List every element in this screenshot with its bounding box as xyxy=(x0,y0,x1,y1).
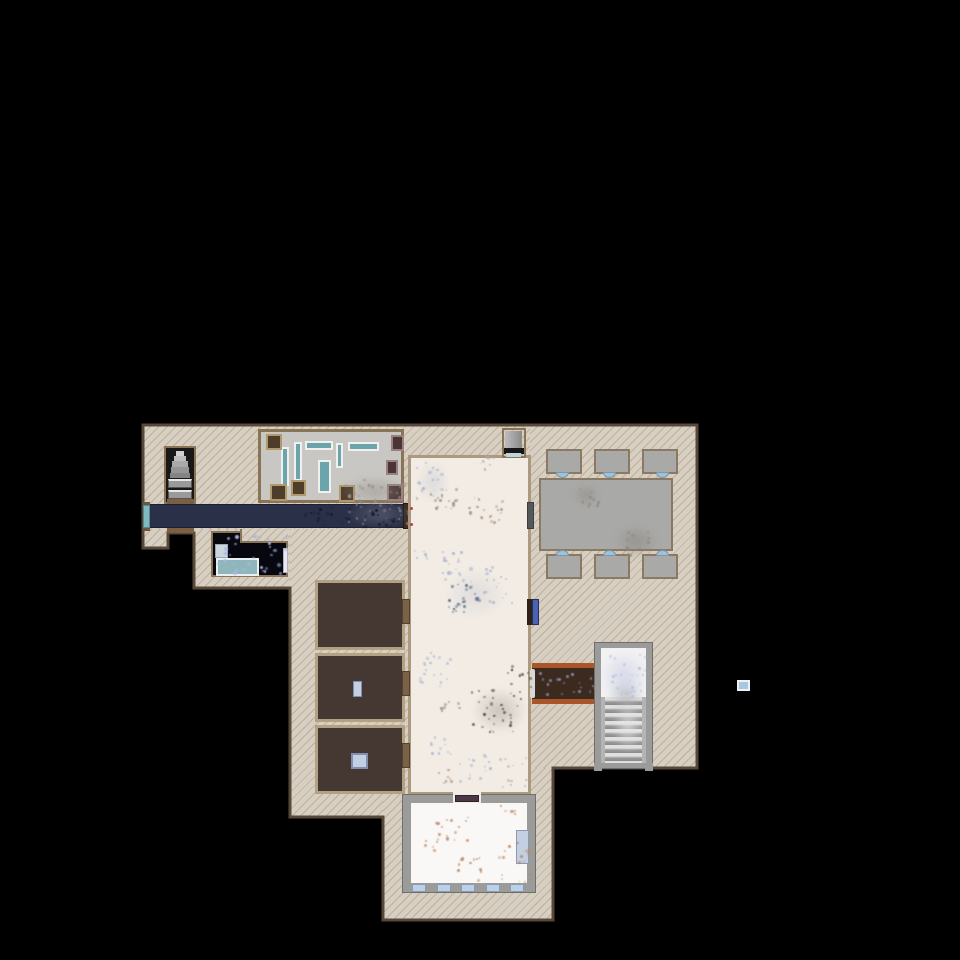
fireplace-sill xyxy=(506,453,521,457)
sink[interactable] xyxy=(215,544,228,558)
storage-door[interactable] xyxy=(402,599,410,624)
chair-cushion xyxy=(556,550,569,556)
dining-door[interactable] xyxy=(527,502,534,529)
workshop-counter[interactable] xyxy=(294,442,302,481)
fireplace[interactable] xyxy=(505,431,522,448)
crate[interactable] xyxy=(266,434,282,450)
door-cap xyxy=(143,502,150,505)
south-room-cabinet[interactable] xyxy=(516,830,529,864)
blue-cabinet[interactable] xyxy=(532,599,539,625)
south-room-door[interactable] xyxy=(455,795,479,802)
chair[interactable] xyxy=(642,449,678,474)
storage-item-small[interactable] xyxy=(353,681,362,697)
chair[interactable] xyxy=(642,554,678,579)
storage-item-box[interactable] xyxy=(351,753,368,769)
stair-rail xyxy=(601,697,605,763)
chair-cushion xyxy=(656,550,669,556)
crate-dark[interactable] xyxy=(387,484,403,501)
south-exit-threshold xyxy=(167,528,194,533)
stair-landing[interactable] xyxy=(168,490,192,499)
stairs-up-step[interactable] xyxy=(170,473,190,478)
corridor-floor xyxy=(149,504,411,528)
window[interactable] xyxy=(412,884,426,892)
great-hall-floor xyxy=(408,455,531,795)
door-cap xyxy=(143,528,150,531)
floor-slab-stub xyxy=(143,529,168,548)
workshop-counter[interactable] xyxy=(336,443,343,468)
washroom-notch xyxy=(240,529,288,543)
corridor-west-door[interactable] xyxy=(143,505,150,528)
serving-table-edge xyxy=(532,699,597,704)
bathtub[interactable] xyxy=(216,558,259,576)
workshop-counter[interactable] xyxy=(281,447,289,486)
serving-table[interactable] xyxy=(532,668,597,699)
serving-table-cap xyxy=(530,669,535,698)
workshop-counter[interactable] xyxy=(318,460,331,493)
washroom-east-door[interactable] xyxy=(283,548,288,573)
chair[interactable] xyxy=(546,449,582,474)
window[interactable] xyxy=(510,884,524,892)
storage-room-1 xyxy=(315,580,405,650)
crate-dark[interactable] xyxy=(391,435,404,451)
stairs-down[interactable] xyxy=(601,697,646,763)
floor-plan-map xyxy=(0,0,960,960)
crate[interactable] xyxy=(270,484,287,501)
stairwell-post xyxy=(645,763,653,771)
crate-dark[interactable] xyxy=(386,460,398,475)
storage-door[interactable] xyxy=(402,671,410,696)
chair[interactable] xyxy=(594,449,630,474)
chair-cushion xyxy=(603,550,616,556)
detached-window-marker[interactable] xyxy=(737,680,750,691)
window[interactable] xyxy=(486,884,500,892)
workshop-counter[interactable] xyxy=(348,442,379,451)
stairwell-post xyxy=(594,763,602,771)
storage-door[interactable] xyxy=(402,743,410,768)
dining-table[interactable] xyxy=(539,478,673,551)
window[interactable] xyxy=(461,884,475,892)
window[interactable] xyxy=(437,884,451,892)
chair[interactable] xyxy=(594,554,630,579)
stair-landing[interactable] xyxy=(168,479,192,488)
stair-rail xyxy=(642,697,646,763)
crate[interactable] xyxy=(291,480,306,496)
workshop-counter[interactable] xyxy=(305,441,333,450)
south-room-floor xyxy=(411,803,527,883)
crate[interactable] xyxy=(339,485,355,502)
chair[interactable] xyxy=(546,554,582,579)
